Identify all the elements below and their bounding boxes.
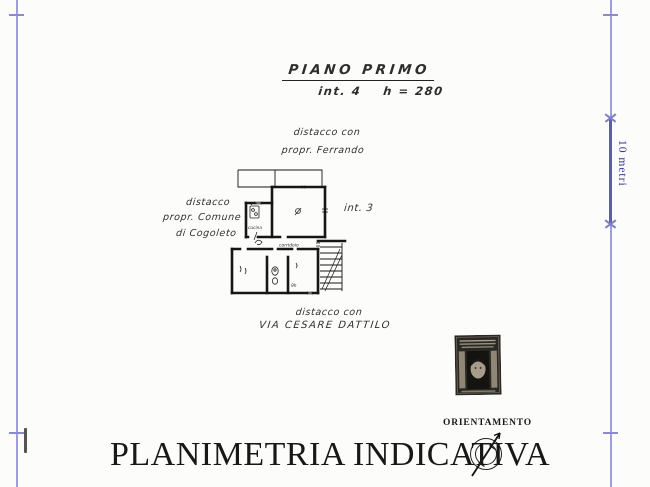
frame-tick-top-right xyxy=(603,14,618,16)
floorplan-document-page: 10 metri PIANO PRIMO int. 4 h = 280 dist… xyxy=(0,0,650,487)
frame-right-line xyxy=(610,0,612,487)
revenue-stamp-portrait-icon xyxy=(454,335,501,396)
room-note-label: 9h xyxy=(291,283,297,289)
balcony-outline xyxy=(238,170,322,187)
boundary-bottom-line2: VIA CESARE DATTILO xyxy=(254,320,395,331)
scale-bar xyxy=(609,118,612,224)
document-title: PLANIMETRIA INDICATIVA xyxy=(110,436,550,474)
frame-tick-top-left xyxy=(9,14,24,16)
staircase xyxy=(320,243,342,291)
scale-tick-bottom-icon xyxy=(604,217,617,230)
frame-tick-bottom-right xyxy=(603,432,618,434)
scale-tick-top-icon xyxy=(604,111,617,124)
scan-artifact xyxy=(24,428,27,453)
boundary-top-line1: distacco con xyxy=(271,127,382,138)
orientation-label: ORIENTAMENTO xyxy=(443,418,523,428)
corridor-label: corridoio xyxy=(279,243,299,249)
kitchen-label: cucina xyxy=(248,225,262,231)
frame-left-line xyxy=(16,0,18,487)
plan-title: PIANO PRIMO xyxy=(282,62,436,81)
frame-tick-bottom-left xyxy=(9,432,24,434)
plan-subtitle: int. 4 h = 280 xyxy=(315,84,446,98)
floorplan-drawing: cucina corridoio 9h xyxy=(228,165,348,315)
scale-label: 10 metri xyxy=(616,140,628,187)
boundary-left-line1: distacco xyxy=(185,197,230,208)
boundary-top-line2: propr. Ferrando xyxy=(261,145,384,156)
